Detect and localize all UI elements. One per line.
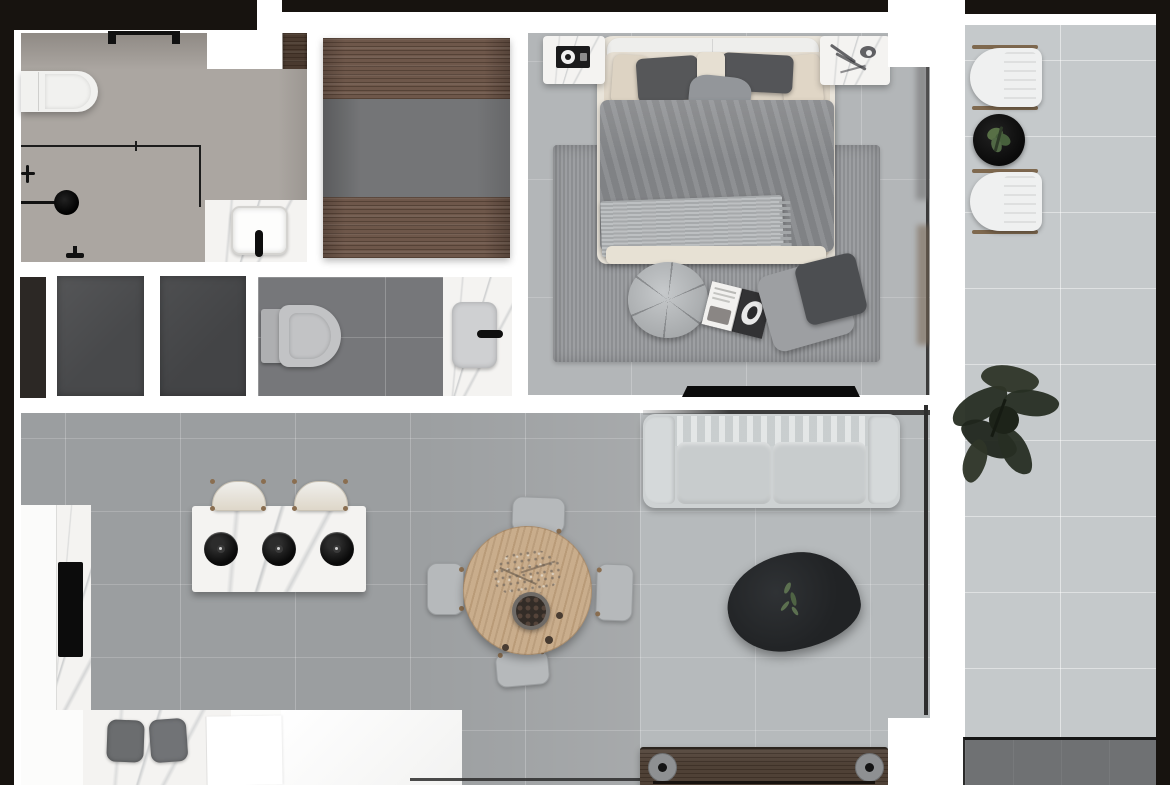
dining-chair-left	[427, 563, 464, 615]
shower-partition-line-v	[199, 145, 201, 207]
nightstand-right-decor	[826, 42, 884, 80]
sliding-door-rail	[108, 31, 180, 45]
berry-3	[556, 612, 563, 619]
bench-wheel-left	[648, 753, 677, 782]
bedroom-door-gap	[888, 12, 965, 67]
lounge-chair-bottom	[970, 172, 1042, 231]
balcony-mat	[963, 737, 1160, 785]
bar-stool-2	[294, 481, 346, 509]
outer-wall-right	[1156, 0, 1170, 785]
outer-wall-top-right	[965, 0, 1157, 14]
sofa	[643, 414, 900, 508]
round-pouf	[628, 262, 708, 338]
rain-shower-arm	[21, 201, 58, 204]
counter-stool-1	[106, 719, 144, 762]
vanity-faucet	[255, 230, 263, 257]
bathroom-wood-cabinet	[283, 33, 307, 69]
bathroom-door-opening	[207, 33, 282, 69]
hall-door-panel-0	[20, 277, 46, 398]
lounge-chair-top	[970, 48, 1042, 107]
potted-plant	[981, 122, 1017, 158]
rod-under-bench	[653, 781, 875, 784]
closet-shelf-bottom	[323, 197, 510, 258]
sofa-seat-2	[773, 442, 866, 504]
outer-wall-top-mid	[282, 0, 888, 12]
sofa-seat-1	[677, 442, 771, 504]
wall-hung-toilet	[21, 71, 98, 112]
outer-wall-left	[0, 0, 14, 785]
coffee-table-sprig	[775, 580, 809, 620]
outer-wall-top-left	[0, 0, 257, 30]
bedroom-curtain-brown	[917, 225, 930, 345]
wood-bench	[640, 747, 888, 785]
balcony-pillar-white	[888, 718, 965, 785]
counter-cooktop	[58, 562, 83, 657]
bed-foot-strip	[606, 246, 826, 264]
berry-2	[502, 644, 509, 651]
island-burner-1	[204, 532, 238, 566]
sofa-arm-right	[868, 416, 898, 504]
large-plant	[945, 362, 1063, 484]
bedroom-curtain-gray	[916, 60, 929, 200]
hall-panel-2	[160, 276, 246, 396]
nightstand-left-decor	[556, 46, 590, 68]
nightstand-left	[543, 36, 605, 84]
wall-tv	[682, 386, 860, 397]
throw-fringe	[779, 201, 792, 251]
dining-chair-right	[595, 563, 634, 621]
nightstand-right	[820, 36, 890, 85]
rain-shower-head	[54, 190, 79, 215]
shower-valve-icon	[21, 165, 37, 183]
island-burner-3	[320, 532, 354, 566]
bright-counter-panel	[206, 715, 282, 785]
sofa-arm-left	[645, 416, 675, 504]
wc-toilet-bowl	[279, 305, 341, 367]
bar-stool-1	[212, 481, 264, 509]
shower-partition-tick	[135, 141, 137, 151]
hall-panel-1	[57, 276, 144, 396]
berry-bowl	[512, 592, 550, 630]
closet-shelf-top	[323, 38, 510, 99]
rod-left	[410, 778, 645, 781]
closet-hanging-area	[323, 99, 510, 197]
berry-1	[545, 636, 553, 644]
shower-partition-line-h	[21, 145, 200, 147]
floor-plan	[0, 0, 1170, 785]
island-burner-2	[262, 532, 296, 566]
wc-faucet	[477, 330, 503, 338]
wardrobe-closet	[323, 38, 510, 258]
bench-wheel-right	[855, 753, 884, 782]
counter-stool-2	[149, 718, 189, 763]
living-window-line	[924, 405, 928, 715]
shower-drain-icon	[66, 246, 84, 260]
